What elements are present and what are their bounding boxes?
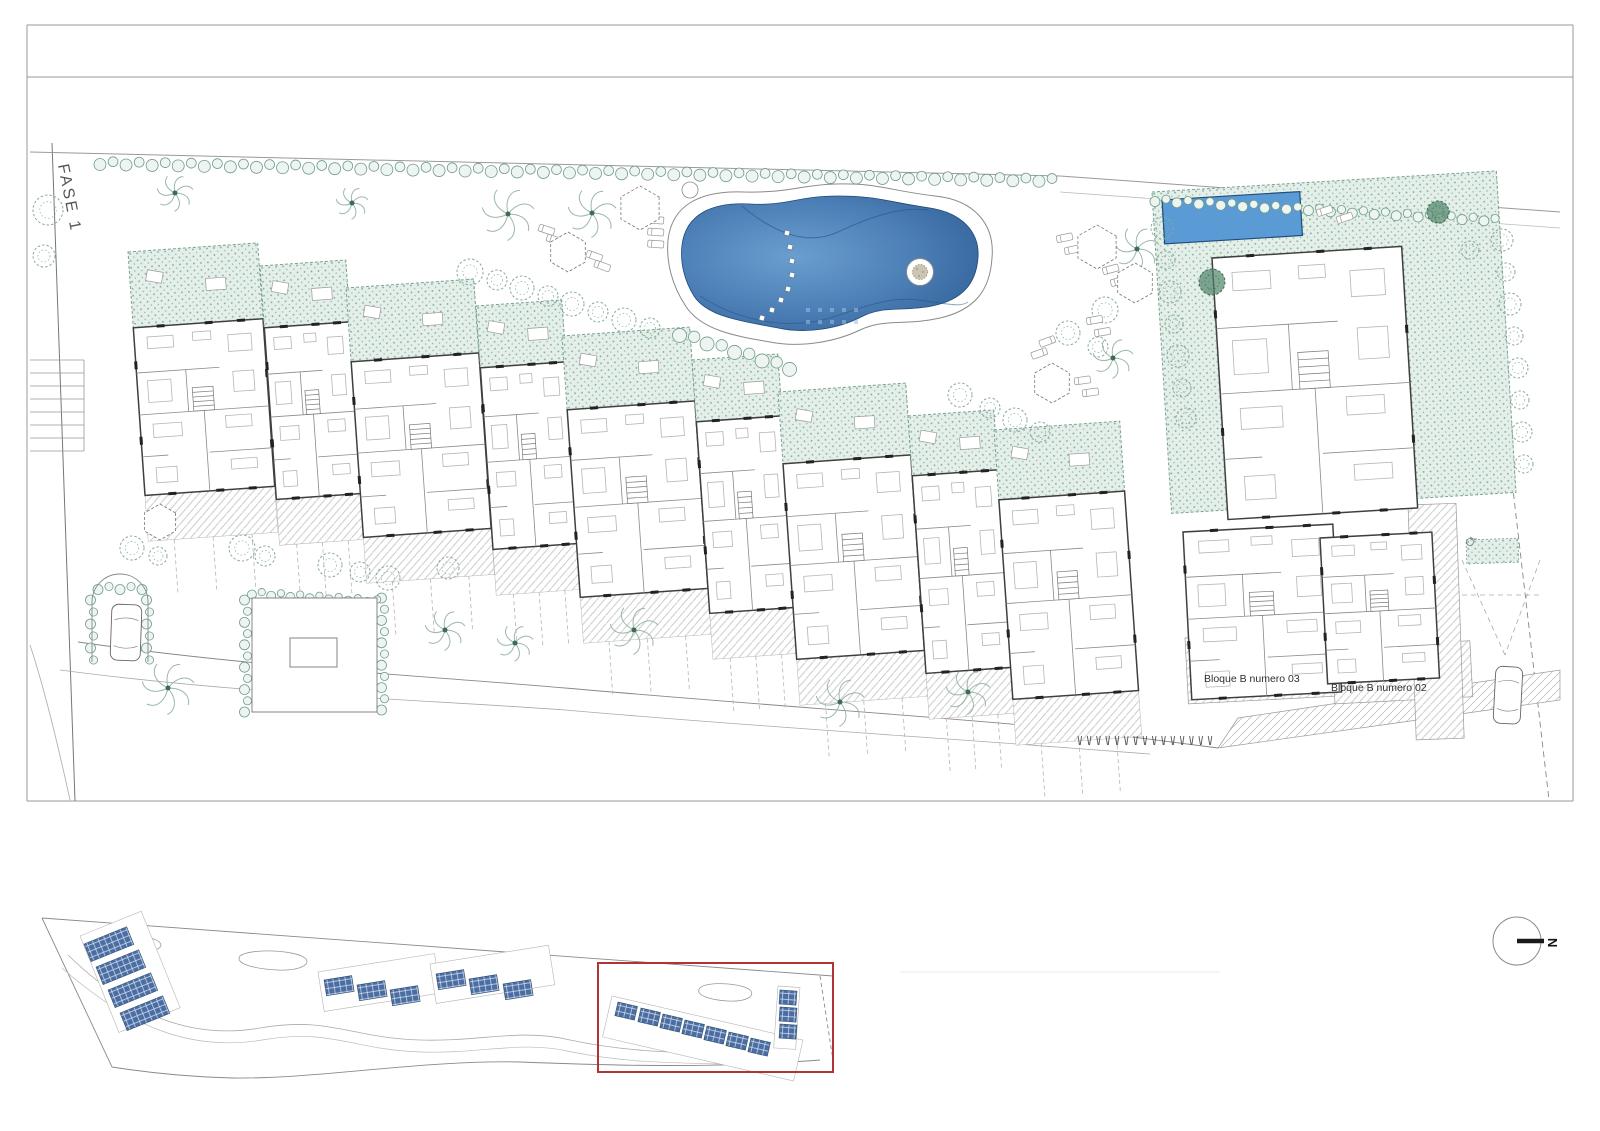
- staircase: [737, 491, 753, 519]
- palm-trunk: [966, 690, 971, 695]
- private-garden: [476, 300, 566, 368]
- window-tick: [345, 493, 353, 497]
- hedge-shrub: [224, 161, 236, 173]
- hedge-shrub: [1413, 212, 1423, 222]
- guide-line: [686, 636, 690, 690]
- tree-inner: [1519, 459, 1529, 469]
- hedge-shrub: [146, 159, 158, 171]
- building-block: [127, 243, 284, 595]
- hedge-shrub: [145, 608, 153, 616]
- stair-box: [521, 433, 537, 459]
- tree-inner: [235, 541, 249, 555]
- building-unit: [1318, 531, 1441, 686]
- window-tick: [1214, 310, 1217, 318]
- palm-frond: [496, 635, 515, 649]
- tree-inner: [1008, 413, 1021, 426]
- palm-trunk: [506, 212, 511, 217]
- palm-frond: [1113, 350, 1133, 358]
- window-tick: [237, 319, 245, 323]
- window-tick: [168, 492, 176, 496]
- hedge-shrub: [89, 656, 97, 664]
- hedge-shrub: [824, 172, 836, 184]
- hedge-shrub: [369, 161, 379, 171]
- window-tick: [1417, 677, 1425, 680]
- palm-frond: [171, 193, 182, 212]
- hedge-shrub: [838, 170, 848, 180]
- tree-canopy: [255, 546, 275, 566]
- guide-line: [647, 639, 651, 693]
- hedge-shrub: [243, 607, 251, 615]
- tree-inner: [515, 281, 528, 294]
- private-garden: [346, 279, 479, 362]
- palm-frond: [175, 186, 193, 193]
- window-tick: [1274, 694, 1282, 697]
- staircase: [192, 386, 214, 411]
- hedge-shrub: [929, 173, 941, 185]
- window-tick: [778, 607, 786, 611]
- sun-lounger: [538, 224, 555, 236]
- window-tick: [323, 494, 331, 498]
- tree-icon: [33, 245, 55, 267]
- hedge-shrub: [850, 172, 862, 184]
- window-tick: [959, 470, 967, 474]
- window-tick: [249, 486, 257, 490]
- palm-frond: [168, 682, 192, 709]
- hedge-shrub: [377, 638, 387, 648]
- palm-frond: [162, 688, 177, 716]
- window-tick: [311, 322, 319, 326]
- hedge-shrub: [716, 340, 727, 351]
- stepping-stone: [769, 307, 775, 313]
- hedge-shrub: [291, 160, 301, 170]
- lounger-body: [586, 250, 603, 262]
- entry-dot: [818, 320, 822, 324]
- window-tick: [1340, 535, 1348, 538]
- palm-frond: [156, 185, 175, 199]
- parking-guides: [730, 654, 785, 711]
- hedge-shrub: [969, 172, 979, 182]
- garden-furniture: [579, 353, 597, 367]
- hedge-shrub: [728, 345, 742, 359]
- hedge-shrub: [243, 630, 251, 638]
- tree-inner: [492, 275, 503, 286]
- palm-tree-icon: [566, 188, 616, 238]
- tree-icon: [318, 553, 342, 577]
- overview-building-roof: [779, 990, 797, 1005]
- hedge-shrub: [668, 169, 680, 181]
- tree-inner: [323, 558, 336, 571]
- window-tick: [784, 503, 788, 511]
- hedge-shrub: [265, 160, 275, 170]
- hedge-shrub: [656, 167, 666, 177]
- window-tick: [1221, 428, 1224, 436]
- window-tick: [1316, 250, 1324, 253]
- hedge-shrub: [700, 337, 714, 351]
- window-tick: [1409, 531, 1417, 534]
- tally-mark: [1143, 736, 1147, 745]
- palm-trunk: [173, 191, 178, 196]
- window-tick: [333, 321, 341, 325]
- palm-frond: [502, 214, 517, 242]
- stepping-stone: [787, 244, 793, 250]
- window-tick: [1183, 565, 1186, 573]
- hedge-shrub: [673, 328, 687, 342]
- window-tick: [603, 594, 611, 598]
- staircase: [953, 547, 969, 576]
- entry-dot: [854, 320, 858, 324]
- tree-canopy: [149, 547, 167, 565]
- window-tick: [487, 486, 491, 494]
- window-tick: [421, 355, 429, 359]
- tree-inner: [1515, 395, 1525, 405]
- tree-canopy: [318, 553, 342, 577]
- hedge-shrub: [142, 619, 152, 629]
- palm-trunk: [632, 628, 637, 633]
- entry-dot: [830, 320, 834, 324]
- hedge-shrub: [240, 662, 250, 672]
- hedge-shrub: [798, 171, 810, 183]
- hedge-shrub: [329, 163, 341, 175]
- building-block: [1210, 245, 1419, 521]
- window-tick: [1035, 696, 1043, 700]
- window-tick: [265, 362, 269, 370]
- sun-lounger: [1031, 347, 1048, 359]
- sun-lounger: [648, 228, 664, 236]
- bloque-02-label: Bloque B numero 02: [1331, 682, 1427, 694]
- tally-mark: [1199, 736, 1203, 745]
- tree-icon: [1508, 358, 1528, 378]
- guide-line: [392, 581, 396, 635]
- window-tick: [1099, 491, 1107, 495]
- guide-line: [565, 590, 569, 644]
- terrace-hatch: [493, 543, 582, 595]
- window-tick: [650, 590, 658, 594]
- car: [1493, 666, 1523, 724]
- overview-building-roof: [779, 1007, 797, 1022]
- tree-canopy: [229, 535, 255, 561]
- hedge-shrub: [377, 683, 387, 693]
- hedge-shrub: [258, 588, 265, 595]
- hedge-shrub: [760, 168, 770, 178]
- lounger-body: [648, 240, 664, 248]
- palm-frond: [352, 197, 368, 203]
- hedge-shrub: [1184, 196, 1192, 204]
- garden-table: [854, 416, 875, 429]
- hedge-shrub: [108, 157, 118, 167]
- garden-table: [744, 381, 765, 394]
- palm-frond: [508, 208, 532, 235]
- tree-inner: [463, 265, 477, 279]
- hedge-shrub: [127, 582, 135, 590]
- lounger-body: [1094, 327, 1111, 337]
- palm-trunk: [1111, 356, 1116, 361]
- hedge-shrub: [1359, 207, 1367, 215]
- tree-icon: [33, 195, 63, 225]
- sun-lounger: [1082, 388, 1099, 397]
- window-tick: [574, 532, 578, 540]
- window-tick: [292, 496, 300, 500]
- hedge-shrub: [1216, 200, 1226, 210]
- tree-inner: [953, 388, 966, 401]
- window-tick: [205, 321, 213, 325]
- guide-line: [972, 716, 976, 770]
- hedge-shrub: [1150, 196, 1160, 206]
- tree-canopy: [33, 195, 63, 225]
- palm-frond: [152, 663, 168, 691]
- window-tick: [669, 401, 677, 405]
- palm-tree-icon: [424, 610, 465, 652]
- hedge-shrub: [1172, 198, 1182, 208]
- hedge-shrub: [1391, 211, 1401, 221]
- overview-key-plan: [42, 911, 1220, 1081]
- window-tick: [280, 325, 288, 329]
- stair-box: [1298, 351, 1331, 389]
- window-tick: [765, 415, 773, 419]
- staircase: [1370, 590, 1389, 611]
- hedge-shrub: [955, 174, 967, 186]
- palm-trunk: [1135, 247, 1140, 252]
- tally-mark: [1152, 736, 1156, 745]
- palm-frond: [441, 630, 453, 651]
- building-unit: [350, 351, 500, 637]
- tree-canopy: [1515, 455, 1533, 473]
- palm-trunk: [838, 700, 843, 705]
- tree-canopy: [1427, 201, 1449, 223]
- building-block: [777, 383, 933, 759]
- hedge-shrub: [1206, 198, 1214, 206]
- tree-canopy: [1511, 391, 1529, 409]
- hedge-shrub: [499, 164, 509, 174]
- tally-mark: [1171, 736, 1175, 745]
- palm-frond: [511, 643, 522, 662]
- window-tick: [1133, 635, 1137, 643]
- stair-box: [626, 476, 648, 504]
- guide-line: [902, 698, 906, 752]
- garden-furniture: [703, 375, 721, 389]
- palm-tree-icon: [335, 187, 368, 220]
- site-plan-drawing: FASE 1 Bloque B numero 03 Bloque B numer…: [0, 0, 1600, 1131]
- window-tick: [358, 476, 362, 484]
- window-tick: [590, 406, 598, 410]
- phase-label: FASE 1: [54, 163, 84, 234]
- window-tick: [1021, 496, 1029, 500]
- hedge-shrub: [1282, 204, 1292, 214]
- hedge-shrub: [865, 170, 875, 180]
- palm-frond: [515, 639, 532, 657]
- window-tick: [1433, 576, 1436, 584]
- north-label: N: [1545, 938, 1560, 947]
- window-tick: [913, 515, 917, 523]
- hedge-row: [94, 157, 1057, 187]
- car-body: [110, 604, 142, 661]
- tree-inner: [543, 291, 554, 302]
- hedge-shrub: [1337, 205, 1345, 213]
- garden-furniture: [1011, 446, 1029, 460]
- hedge-shrub: [212, 159, 222, 169]
- garden-table: [638, 360, 659, 373]
- window-tick: [1412, 435, 1415, 443]
- hedge-shrub: [511, 166, 523, 178]
- stair-box: [953, 547, 969, 576]
- window-tick: [562, 543, 570, 547]
- tree-inner: [260, 551, 271, 562]
- lounger-body: [1056, 233, 1073, 243]
- hedge-shrub: [243, 697, 251, 705]
- hedge-shrub: [772, 171, 784, 183]
- palm-frond: [445, 625, 463, 645]
- hedge-shrub: [771, 357, 782, 368]
- stair-box: [1370, 590, 1389, 611]
- tree-icon: [1512, 422, 1532, 442]
- hedge-shrub: [86, 619, 96, 629]
- window-tick: [806, 460, 814, 464]
- stepping-stone: [784, 230, 790, 236]
- tally-mark: [1162, 736, 1166, 745]
- palm-frond: [566, 203, 592, 222]
- palm-trunk: [350, 201, 355, 206]
- hedge-shrub: [105, 582, 113, 590]
- hedge-shrub: [1369, 209, 1379, 219]
- hedge-shrub: [86, 595, 96, 605]
- hedge-shrub: [240, 640, 250, 650]
- window-tick: [1380, 508, 1388, 511]
- staircase: [305, 390, 320, 415]
- hedge-shrub: [377, 705, 387, 715]
- hedge-shrub: [1021, 173, 1031, 183]
- window-tick: [1187, 641, 1190, 649]
- garden-table: [422, 312, 443, 325]
- hedge-shrub: [1303, 206, 1313, 216]
- staircase: [521, 433, 537, 459]
- tree-icon: [149, 547, 167, 565]
- hedge-shrub: [1294, 203, 1302, 211]
- palm-frond: [835, 702, 849, 727]
- tree-canopy: [1508, 358, 1528, 378]
- tree-inner: [153, 551, 163, 561]
- hedge-shrub: [355, 163, 367, 175]
- hedge-shrub: [377, 615, 387, 625]
- parking-guides: [513, 590, 568, 647]
- window-tick: [496, 365, 504, 369]
- parking-guides: [392, 576, 472, 635]
- garden-furniture: [146, 270, 164, 284]
- sun-lounger: [1039, 335, 1056, 347]
- palm-frond: [492, 189, 508, 217]
- hedge-shrub: [891, 171, 901, 181]
- hedge-shrub: [1469, 213, 1477, 221]
- hedge-shrub: [317, 161, 327, 171]
- building-block: [1318, 531, 1441, 686]
- hedge-shrub: [1194, 199, 1204, 209]
- sun-lounger: [594, 260, 611, 272]
- terrace-hatch: [710, 607, 799, 659]
- window-tick: [271, 439, 275, 447]
- parking-guides: [825, 698, 905, 757]
- tally-mark: [1190, 736, 1194, 745]
- guide-line: [946, 718, 950, 772]
- tree-canopy: [1056, 321, 1080, 345]
- tree-inner: [593, 307, 604, 318]
- private-garden: [778, 383, 911, 464]
- hedge-shrub: [1047, 174, 1057, 184]
- palm-frond: [515, 636, 533, 643]
- tree-dark-icon: [1427, 201, 1449, 223]
- hedge-shrub: [688, 331, 699, 342]
- palm-frond: [578, 190, 592, 215]
- lounger-body: [1082, 388, 1099, 397]
- tree-icon: [560, 292, 584, 316]
- hedge-shrub: [240, 617, 250, 627]
- stepping-stone: [789, 258, 795, 264]
- tree-inner: [1504, 298, 1516, 310]
- window-tick: [973, 668, 981, 672]
- garden-furniture: [271, 281, 289, 295]
- hedge-shrub: [250, 161, 262, 173]
- stepping-stone: [759, 315, 765, 321]
- window-tick: [527, 362, 535, 366]
- staircase: [1249, 591, 1274, 616]
- hedge-shrub: [1162, 195, 1170, 203]
- sun-lounger: [648, 240, 664, 248]
- tree-icon: [1088, 337, 1108, 357]
- hedge-shrub: [525, 164, 535, 174]
- private-garden: [128, 243, 263, 328]
- parking-guides: [609, 636, 689, 695]
- hedge-shrub: [1491, 214, 1499, 222]
- staircase: [1298, 351, 1331, 389]
- hedge-shrub: [1228, 199, 1236, 207]
- window-tick: [540, 544, 548, 548]
- window-tick: [134, 361, 138, 369]
- overview-building-roof: [779, 1024, 797, 1039]
- palm-frond: [1113, 353, 1131, 373]
- guide-line: [539, 592, 543, 646]
- hedge-shrub: [381, 164, 393, 176]
- tree-icon: [1056, 321, 1080, 345]
- stepping-stone: [789, 272, 795, 278]
- car: [110, 604, 142, 661]
- sun-lounger: [1094, 327, 1111, 337]
- hedge-shrub: [395, 162, 405, 172]
- palm-frond: [587, 213, 601, 238]
- window-tick: [1210, 529, 1218, 532]
- tree-inner: [617, 313, 630, 326]
- tree-canopy: [948, 383, 972, 407]
- window-tick: [725, 610, 733, 614]
- hedge-shrub: [277, 162, 289, 174]
- north-arrow: N: [1493, 917, 1560, 965]
- window-tick: [453, 353, 461, 357]
- hedge-shrub: [303, 162, 315, 174]
- sun-lounger: [1074, 376, 1091, 385]
- palm-frond: [335, 196, 352, 208]
- palm-tree-icon: [1092, 338, 1133, 380]
- window-tick: [757, 608, 765, 612]
- hedge-shrub: [682, 167, 692, 177]
- stepping-stone: [785, 286, 791, 292]
- hedge-shrub: [1479, 216, 1489, 226]
- palm-frond: [592, 204, 616, 213]
- tree-canopy: [510, 276, 534, 300]
- palm-frond: [1137, 244, 1157, 266]
- window-tick: [386, 534, 394, 538]
- lounger-body: [1031, 347, 1048, 359]
- window-tick: [704, 546, 708, 554]
- building-block: [993, 421, 1147, 799]
- hedge-shrub: [786, 169, 796, 179]
- window-tick: [867, 652, 875, 656]
- window-tick: [682, 588, 690, 592]
